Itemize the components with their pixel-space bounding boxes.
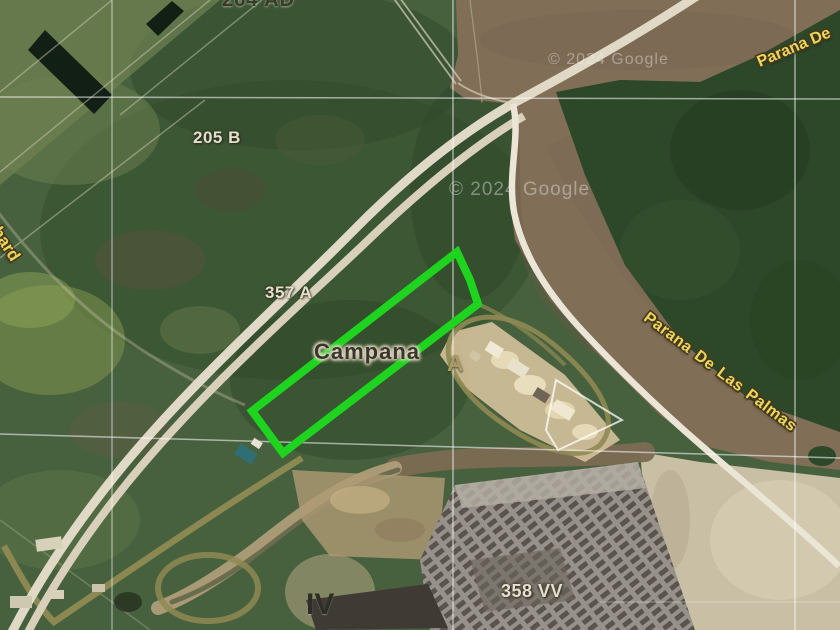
satellite-map-canvas[interactable]: 264 AD 205 B 357 A Campana A IV 358 VV c…: [0, 0, 840, 630]
parcel-label-a-fragment: A: [447, 352, 464, 375]
zone-label-iv: IV: [306, 590, 334, 620]
parcel-label-205b: 205 B: [193, 129, 241, 146]
island-tip-trees: [808, 446, 836, 466]
google-watermark-top-right: © 2024 Google: [548, 52, 669, 68]
parcel-label-357a: 357 A: [265, 284, 312, 301]
parcel-label-358vv: 358 VV: [501, 582, 563, 600]
city-label-campana: Campana: [314, 341, 420, 363]
google-watermark-center: © 2024 Google: [449, 180, 590, 199]
map-terrain: [0, 0, 840, 630]
parcel-label-264ad: 264 AD: [222, 0, 295, 10]
